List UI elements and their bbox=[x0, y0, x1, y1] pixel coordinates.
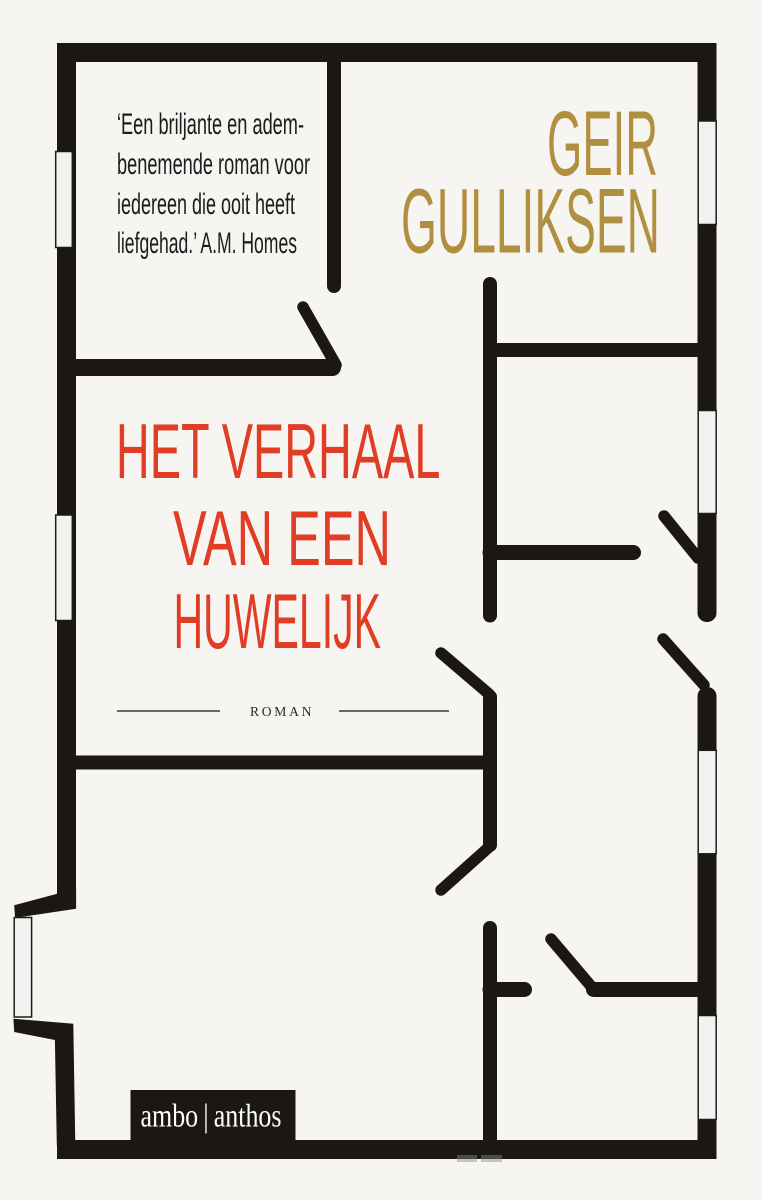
svg-text:VAN EEN: VAN EEN bbox=[173, 494, 391, 582]
svg-text:‘Een briljante en adem-: ‘Een briljante en adem- bbox=[117, 108, 304, 141]
svg-text:HUWELIJK: HUWELIJK bbox=[174, 577, 382, 665]
svg-text:liefgehad.’ A.M. Homes: liefgehad.’ A.M. Homes bbox=[117, 227, 297, 260]
svg-text:GULLIKSEN: GULLIKSEN bbox=[401, 171, 660, 273]
svg-text:ambo | anthos: ambo | anthos bbox=[141, 1099, 282, 1135]
svg-text:HET VERHAAL: HET VERHAAL bbox=[116, 407, 441, 495]
svg-text:benemende roman voor: benemende roman voor bbox=[117, 148, 310, 181]
svg-text:ROMAN: ROMAN bbox=[250, 704, 314, 719]
svg-text:iedereen die ooit heeft: iedereen die ooit heeft bbox=[117, 188, 295, 221]
